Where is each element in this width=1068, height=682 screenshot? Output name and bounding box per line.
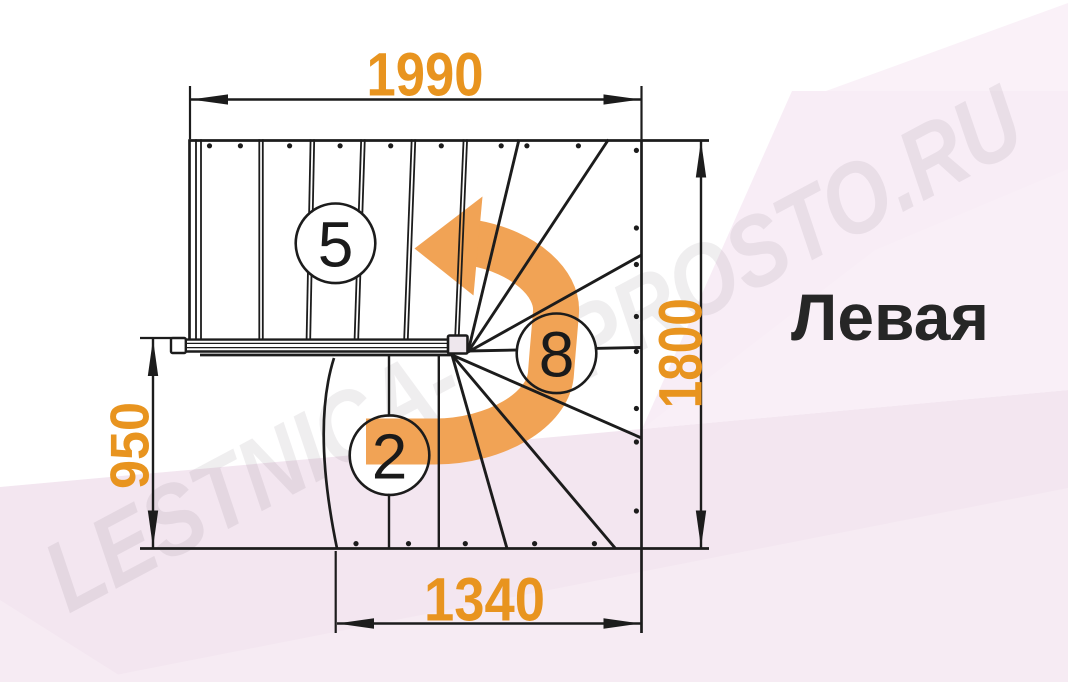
svg-text:2: 2 xyxy=(372,421,408,493)
svg-text:8: 8 xyxy=(539,319,575,391)
svg-text:Левая: Левая xyxy=(791,280,989,354)
svg-text:1800: 1800 xyxy=(647,298,715,408)
svg-text:1990: 1990 xyxy=(367,40,484,108)
svg-text:950: 950 xyxy=(98,402,160,489)
svg-text:1340: 1340 xyxy=(424,566,545,634)
svg-text:5: 5 xyxy=(318,209,354,281)
